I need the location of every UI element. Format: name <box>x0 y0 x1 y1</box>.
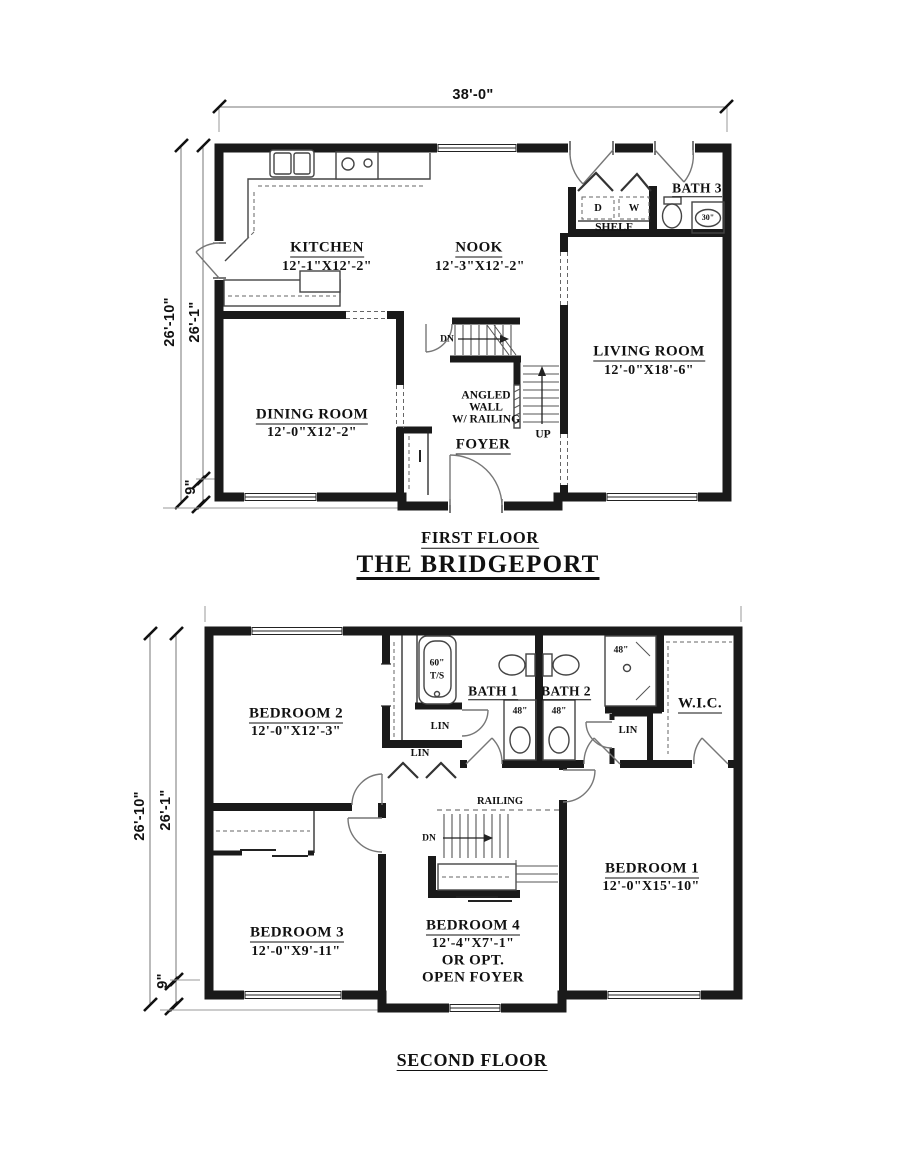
first-floor-drawing <box>163 100 733 513</box>
ff-depth-outer-dim: 26'-10" <box>163 297 178 347</box>
tub-shower-60 <box>419 636 456 704</box>
bedroom4-window <box>450 1005 500 1012</box>
living-room-size-label: 12'-0"X18'-6" <box>604 364 694 378</box>
bath3-label: BATH 3 <box>672 181 722 197</box>
nook-size-label: 12'-3"X12'-2" <box>435 260 525 274</box>
dn-label-ff: DN <box>440 335 454 345</box>
up-label-ff: UP <box>535 429 550 441</box>
kitchen-label: KITCHEN <box>290 241 364 258</box>
toilet-bath2 <box>543 654 579 676</box>
bedroom1-window <box>608 992 700 999</box>
bedroom1-size-label: 12'-0"X15'-10" <box>602 880 699 894</box>
foyer-closet <box>409 430 428 495</box>
bedroom2-door <box>352 774 382 805</box>
bedroom3-door <box>348 818 382 852</box>
bedroom3-closet <box>212 811 314 856</box>
shower48-label: 48" <box>614 646 629 656</box>
toilet-bath1 <box>499 654 535 676</box>
plan-name-title: THE BRIDGEPORT <box>356 552 599 580</box>
wic-door <box>694 738 728 764</box>
bedroom2-window <box>252 628 342 635</box>
nook-window <box>438 145 516 152</box>
linen-closet-1-door <box>462 710 488 736</box>
bedroom1-label: BEDROOM 1 <box>605 862 699 879</box>
floor-plan-linework <box>0 0 900 1165</box>
bedroom3-window <box>245 992 341 999</box>
bedroom2-label: BEDROOM 2 <box>249 707 343 724</box>
bedroom4-option-label-2: OPEN FOYER <box>422 971 524 986</box>
dn-label-sf: DN <box>422 834 436 844</box>
washer-label: W <box>629 204 640 215</box>
living-room-label: LIVING ROOM <box>593 345 705 362</box>
bedroom4-size-label: 12'-4"X7'-1" <box>432 937 515 951</box>
second-floor-title: SECOND FLOOR <box>397 1051 548 1071</box>
ff-offset-dim: 9" <box>184 479 199 495</box>
kitchen-sink <box>270 150 314 177</box>
ff-depth-inner-dim: 26'-1" <box>188 301 203 342</box>
bedroom3-label: BEDROOM 3 <box>250 926 344 943</box>
ff-width-dim: 38'-0" <box>452 88 493 103</box>
vanity1-size-label: 48" <box>513 707 528 717</box>
angled-wall-label-1: ANGLED <box>461 390 510 402</box>
angled-wall-label-2: WALL <box>469 402 503 414</box>
range <box>336 152 378 179</box>
linen3-label: LIN <box>619 726 638 737</box>
shower30-label: 30" <box>702 214 714 222</box>
bath1-label: BATH 1 <box>468 684 518 700</box>
floor-plan-sheet: 38'-0" 26'-10" 26'-1" 9" KITCHEN 12'-1"X… <box>0 0 900 1165</box>
toilet-bath3 <box>663 197 682 228</box>
sf-depth-inner-dim: 26'-1" <box>159 789 174 830</box>
bedroom4-label: BEDROOM 4 <box>426 919 520 936</box>
linen-closet-3 <box>586 712 650 764</box>
tub-size-label: 60" <box>430 659 445 669</box>
dining-window <box>245 494 316 501</box>
bath1-door <box>466 738 502 764</box>
hall-linen-bifold-doors <box>388 763 456 778</box>
laundry-closet <box>578 173 651 221</box>
bedroom2-size-label: 12'-0"X12'-3" <box>251 725 341 739</box>
bath2-door <box>584 738 620 764</box>
foyer-label: FOYER <box>456 438 511 455</box>
bedroom3-size-label: 12'-0"X9'-11" <box>251 945 340 959</box>
dining-room-label: DINING ROOM <box>256 408 368 425</box>
tub-type-label: T/S <box>430 672 444 682</box>
kitchen-size-label: 12'-1"X12'-2" <box>282 260 372 274</box>
wic-label: W.I.C. <box>678 697 722 714</box>
railing-label: RAILING <box>477 797 523 808</box>
sf-depth-outer-dim: 26'-10" <box>133 791 148 841</box>
bedroom4-option-label-1: OR OPT. <box>442 954 505 969</box>
linen1-label: LIN <box>431 722 450 733</box>
dryer-label: D <box>594 204 602 215</box>
bedroom1-door <box>563 770 595 802</box>
staircase-second-floor <box>437 810 560 901</box>
sf-offset-dim: 9" <box>156 973 171 989</box>
bath2-label: BATH 2 <box>541 684 591 700</box>
linen2-label: LIN <box>411 749 430 760</box>
dining-room-size-label: 12'-0"X12'-2" <box>267 426 357 440</box>
first-floor-title: FIRST FLOOR <box>421 530 539 549</box>
vanity2-size-label: 48" <box>552 707 567 717</box>
kitchen-peninsula <box>224 271 340 306</box>
living-window <box>607 494 697 501</box>
angled-wall-label-3: W/ RAILING <box>452 414 520 426</box>
nook-label: NOOK <box>455 241 502 258</box>
shelf-label: SHELF <box>595 222 633 234</box>
